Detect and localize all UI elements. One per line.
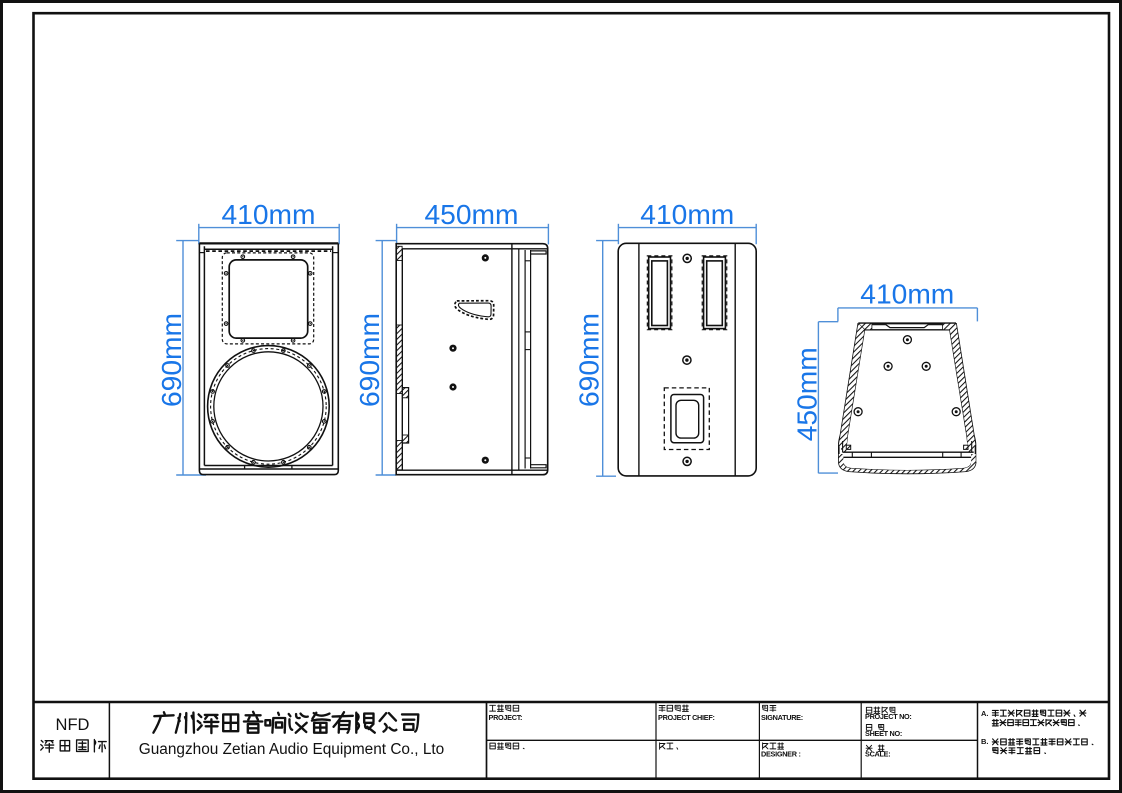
- svg-text:SCALE:: SCALE:: [865, 749, 890, 758]
- svg-text:A.: A.: [981, 709, 989, 718]
- svg-text:SIGNATURE:: SIGNATURE:: [761, 713, 803, 722]
- svg-text:PROJECT:: PROJECT:: [489, 713, 523, 722]
- svg-text:DESIGNER :: DESIGNER :: [761, 750, 801, 759]
- svg-text:SHEET NO:: SHEET NO:: [865, 729, 902, 738]
- svg-text:PROJECT CHIEF:: PROJECT CHIEF:: [658, 713, 715, 722]
- svg-text:B.: B.: [981, 737, 989, 746]
- svg-text:410mm: 410mm: [860, 277, 954, 309]
- svg-text:PROJECT NO:: PROJECT NO:: [865, 712, 912, 721]
- svg-text:690mm: 690mm: [573, 313, 605, 407]
- svg-text:410mm: 410mm: [222, 198, 316, 230]
- svg-text:690mm: 690mm: [353, 313, 385, 407]
- svg-text:410mm: 410mm: [640, 198, 734, 230]
- svg-text:450mm: 450mm: [425, 198, 519, 230]
- svg-text:NFD: NFD: [56, 716, 90, 734]
- svg-text:450mm: 450mm: [790, 347, 822, 441]
- svg-text:Guangzhou Zetian Audio Equipme: Guangzhou Zetian Audio Equipment Co., Lt…: [139, 741, 444, 758]
- svg-text:690mm: 690mm: [155, 313, 187, 407]
